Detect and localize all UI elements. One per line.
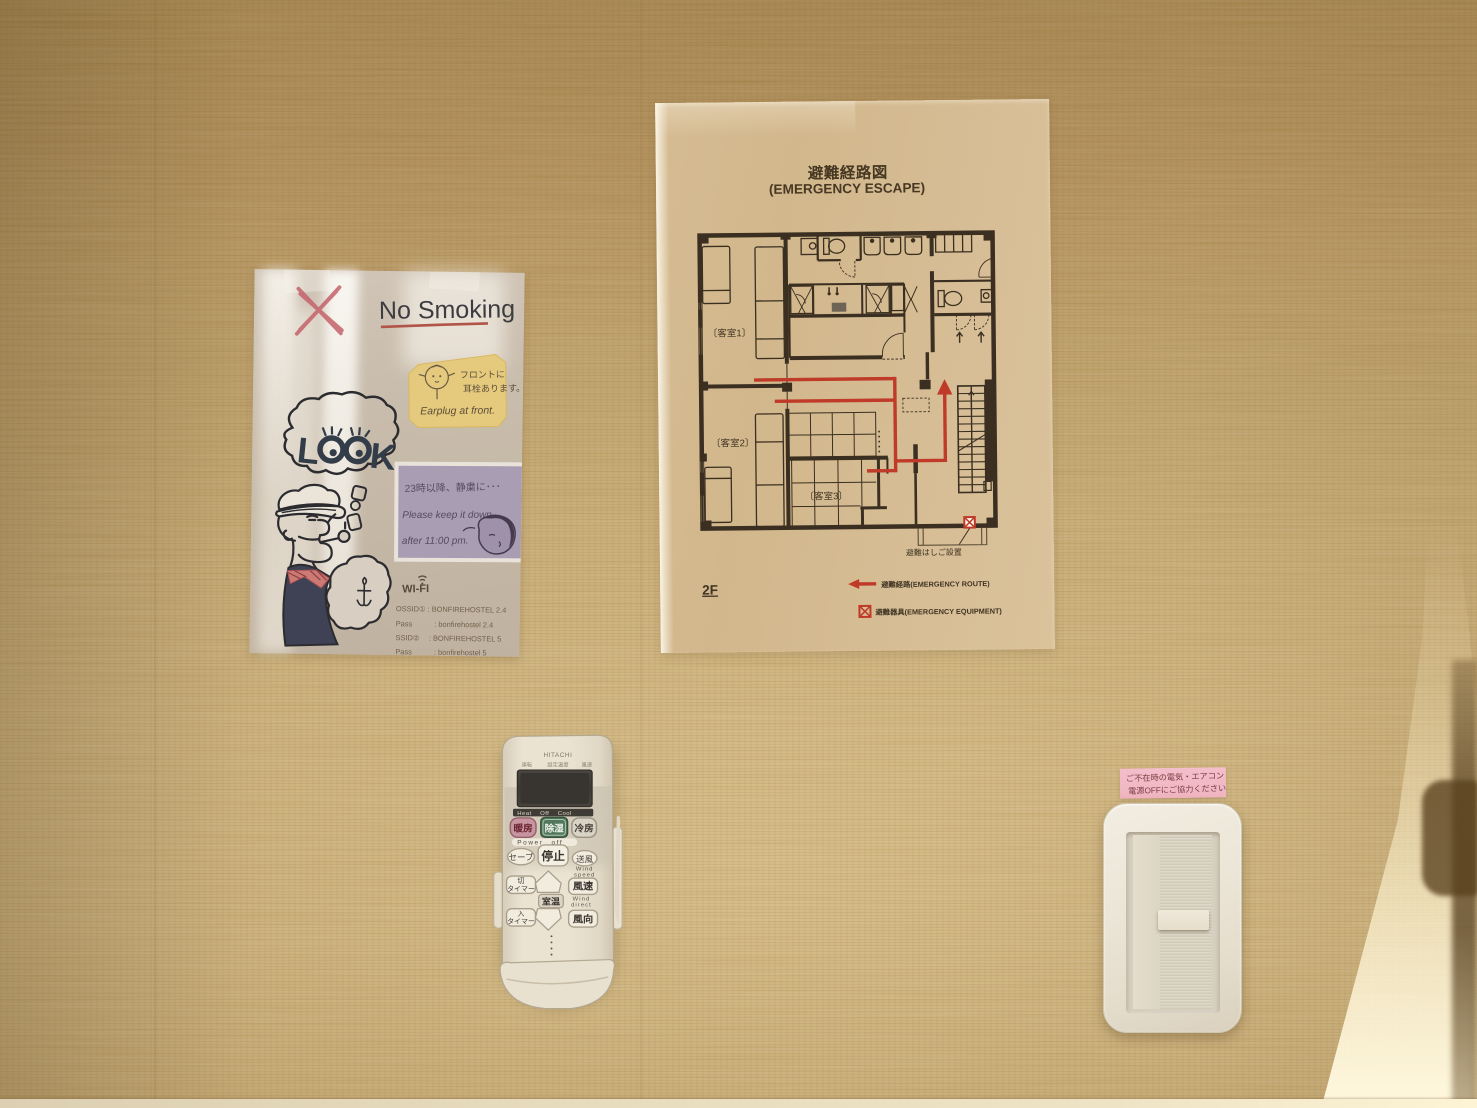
svg-text:セーブ: セーブ: [508, 852, 534, 862]
svg-text:No Smoking: No Smoking: [379, 295, 516, 325]
svg-text:L: L: [295, 429, 320, 472]
svg-text:ご不在時の電気・エアコン: ご不在時の電気・エアコン: [1126, 770, 1225, 783]
svg-text:タイマー: タイマー: [507, 917, 535, 926]
svg-text:Heat Off Cool: Heat Off Cool: [517, 811, 572, 817]
svg-text:OSSID① : BONFIREHOSTEL 2.4: OSSID① : BONFIREHOSTEL 2.4: [396, 604, 506, 615]
svg-text:Wind: Wind: [573, 897, 591, 903]
svg-text:SSID② : BONFIREHOSTEL 5: SSID② : BONFIREHOSTEL 5: [395, 633, 501, 643]
svg-text:避難器具(EMERGENCY EQUIPMENT): 避難器具(EMERGENCY EQUIPMENT): [875, 606, 1002, 616]
svg-text:避難はしご設置: 避難はしご設置: [906, 547, 962, 558]
svg-text:運転: 運転: [522, 762, 533, 769]
svg-text:2F: 2F: [702, 582, 718, 597]
svg-text:タイマー: タイマー: [507, 884, 535, 893]
svg-text:Pass : bonfirehostel 5: Pass : bonfirehostel 5: [395, 647, 486, 657]
svg-text:after 11:00 pm.: after 11:00 pm.: [402, 536, 469, 547]
svg-text:電源OFFにご協力ください。: 電源OFFにご協力ください。: [1128, 783, 1226, 796]
svg-text:風速: 風速: [573, 880, 593, 893]
svg-text:〔客室2〕: 〔客室2〕: [711, 437, 754, 449]
svg-text:除湿: 除湿: [545, 823, 565, 834]
svg-text:〔客室1〕: 〔客室1〕: [708, 327, 751, 339]
svg-text:風速: 風速: [581, 762, 592, 769]
svg-text:direct: direct: [571, 903, 592, 909]
svg-text:〔客室3〕: 〔客室3〕: [805, 490, 848, 502]
svg-text:Pass : bonfirehostel 2.4: Pass : bonfirehostel 2.4: [396, 619, 493, 629]
svg-text:避難経路(EMERGENCY ROUTE): 避難経路(EMERGENCY ROUTE): [881, 579, 990, 589]
svg-text:入: 入: [518, 910, 525, 918]
svg-text:耳栓あります。: 耳栓あります。: [463, 382, 525, 394]
svg-text:設定温度: 設定温度: [547, 761, 569, 769]
svg-text:Please keep it down: Please keep it down: [402, 510, 492, 521]
svg-text:避難経路図: 避難経路図: [808, 163, 888, 183]
svg-text:K: K: [368, 435, 398, 478]
svg-text:送風: 送風: [576, 854, 594, 864]
svg-text:Earplug at front.: Earplug at front.: [420, 405, 495, 418]
svg-text:フロントに: フロントに: [460, 369, 505, 380]
svg-text:HITACHI: HITACHI: [543, 752, 572, 759]
svg-text:停止: 停止: [541, 850, 565, 864]
svg-text:Wind: Wind: [576, 867, 594, 873]
svg-text:WI-FI: WI-FI: [402, 583, 429, 596]
svg-text:暖房: 暖房: [514, 823, 533, 834]
svg-text:風向: 風向: [573, 913, 593, 926]
svg-text:(EMERGENCY ESCAPE): (EMERGENCY ESCAPE): [769, 180, 925, 197]
svg-text:切: 切: [518, 877, 525, 885]
svg-text:室温: 室温: [542, 896, 560, 907]
svg-text:冷房: 冷房: [575, 823, 594, 834]
